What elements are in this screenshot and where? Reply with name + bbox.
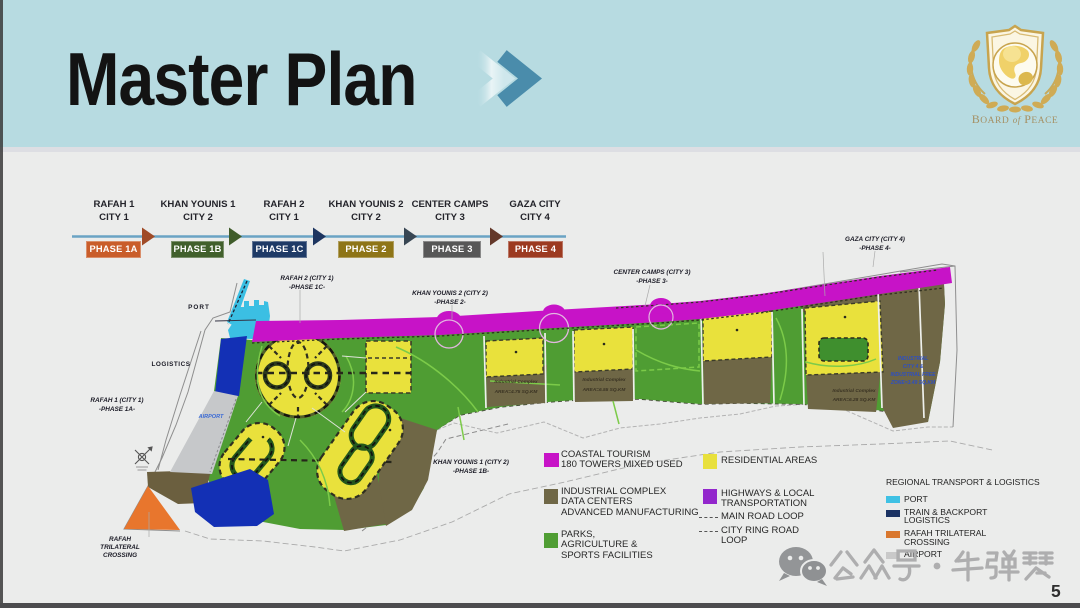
svg-text:-PHASE 1C-: -PHASE 1C- (289, 284, 325, 291)
svg-text:INDUSTRIAL: INDUSTRIAL (898, 356, 928, 362)
svg-text:KHAN YOUNIS 1 (CITY 2): KHAN YOUNIS 1 (CITY 2) (433, 459, 509, 466)
svg-text:PORT: PORT (188, 304, 210, 311)
svg-text:-PHASE 2-: -PHASE 2- (434, 299, 466, 306)
svg-text:ZONE=3.49 SQ.KM: ZONE=3.49 SQ.KM (890, 380, 936, 386)
svg-text:KHAN YOUNIS 2 (CITY 2): KHAN YOUNIS 2 (CITY 2) (412, 290, 488, 297)
svg-text:CENTER CAMPS (CITY 3): CENTER CAMPS (CITY 3) (614, 269, 691, 276)
svg-text:RAFAH 1 (CITY 1): RAFAH 1 (CITY 1) (90, 397, 143, 404)
svg-text:CROSSING: CROSSING (103, 552, 137, 559)
svg-text:AREA=4.75 SQ.KM: AREA=4.75 SQ.KM (494, 389, 539, 395)
svg-text:-PHASE 1B-: -PHASE 1B- (453, 468, 489, 475)
svg-text:Industrial Complex: Industrial Complex (582, 377, 626, 383)
svg-text:RAFAH 2 (CITY 1): RAFAH 2 (CITY 1) (280, 275, 333, 282)
svg-text:RAFAH: RAFAH (109, 536, 131, 543)
svg-text:LOGISTICS: LOGISTICS (152, 361, 191, 368)
svg-text:Industrial Complex: Industrial Complex (494, 379, 538, 385)
svg-text:AIRPORT: AIRPORT (198, 414, 224, 420)
svg-text:CITY 4 &: CITY 4 & (903, 364, 924, 370)
svg-text:-PHASE 4-: -PHASE 4- (859, 245, 891, 252)
svg-text:-PHASE 3-: -PHASE 3- (636, 278, 668, 285)
svg-text:INDUSTRIAL FREE: INDUSTRIAL FREE (891, 372, 937, 378)
svg-text:Industrial Complex: Industrial Complex (832, 388, 876, 394)
svg-text:AREA=6.28 SQ.KM: AREA=6.28 SQ.KM (832, 397, 877, 403)
svg-text:AREA=6.55 SQ.KM: AREA=6.55 SQ.KM (582, 387, 627, 393)
svg-text:TRILATERAL: TRILATERAL (100, 544, 140, 551)
svg-text:-PHASE 1A-: -PHASE 1A- (99, 406, 135, 413)
svg-text:GAZA CITY (CITY 4): GAZA CITY (CITY 4) (845, 236, 905, 243)
